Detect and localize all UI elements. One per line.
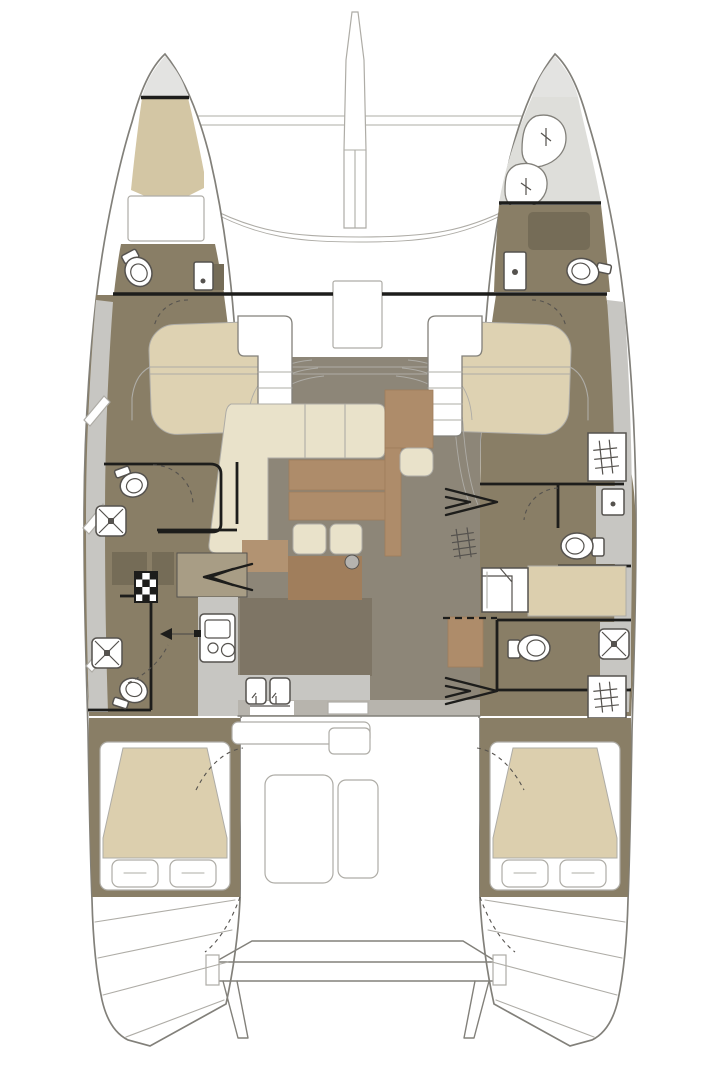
- port-forward-shower-icon: [96, 506, 126, 536]
- port-aft-bed: [103, 748, 227, 858]
- cockpit-table: [265, 775, 333, 883]
- table-leg: [345, 555, 359, 569]
- desk-icon: [482, 568, 528, 612]
- catamaran-floor-plan: [0, 0, 720, 1080]
- port-aft-shower-icon: [92, 638, 122, 668]
- forward-window: [333, 281, 382, 348]
- longeron-spar: [344, 12, 366, 228]
- port-steps-checker: [135, 572, 157, 602]
- hatch-icon: [588, 433, 626, 481]
- hatch-icon: [588, 676, 626, 718]
- salon-stool: [330, 524, 362, 554]
- port-aft-cabin: [89, 718, 240, 897]
- floor-plan-canvas: [0, 0, 720, 1080]
- starboard-aft-shower-icon: [599, 629, 629, 659]
- starboard-aft-cabin: [480, 718, 631, 897]
- foredeck-rigging: [190, 12, 530, 242]
- cockpit-bench: [338, 780, 378, 878]
- port-bow-sink-icon: [194, 262, 213, 290]
- starboard-forward-sink-icon: [602, 489, 624, 515]
- starboard-bow-cabin: [494, 56, 612, 292]
- starboard-bow-sink-icon: [504, 252, 526, 290]
- salon-stool: [293, 524, 326, 554]
- port-bow-berth: [128, 196, 204, 241]
- starboard-aft-bed: [493, 748, 617, 858]
- salon-table: [289, 460, 385, 490]
- cockpit: [196, 718, 524, 952]
- stove-icon: [200, 614, 235, 662]
